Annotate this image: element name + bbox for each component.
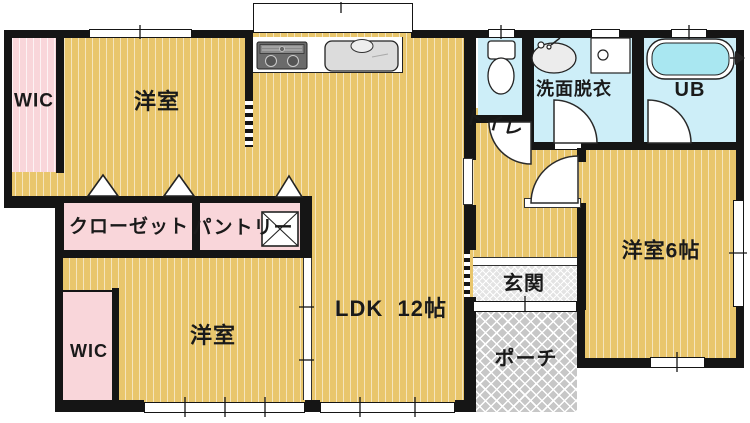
folding-door-triangle (88, 175, 118, 196)
room-label-pantry: パントリー (193, 219, 294, 238)
room-label-unit-bath: UB (675, 80, 706, 100)
bathtub-icon (647, 39, 745, 79)
room-label-bedroom-east: 洋室6帖 (622, 241, 701, 262)
washing-machine-icon (591, 38, 630, 73)
door-arc-bedroom-east (531, 156, 578, 203)
floorplan: WIC 洋室 トイレ 洗面脱衣 UB クローゼット パントリー LDK 12帖 … (0, 0, 750, 423)
floorplan-symbols (0, 0, 750, 423)
room-label-wic-bottom: WIC (70, 342, 108, 360)
folding-door-triangle (164, 175, 194, 196)
stove-icon (257, 42, 307, 69)
room-label-wic-top: WIC (14, 92, 54, 111)
room-label-entrance: 玄関 (503, 274, 545, 294)
room-label-bedroom-bottom: 洋室 (190, 325, 236, 347)
folding-door-marks (88, 175, 302, 197)
room-label-bedroom-top: 洋室 (134, 91, 180, 113)
room-label-porch: ポーチ (495, 349, 558, 369)
room-label-ldk: LDK 12帖 (335, 298, 447, 320)
room-label-washroom: 洗面脱衣 (536, 80, 612, 98)
toilet-icon (488, 41, 515, 94)
room-label-closet: クローゼット (69, 218, 189, 237)
door-arc-bath (648, 100, 691, 143)
door-arc-washroom (554, 100, 597, 143)
kitchen-sink-icon (325, 40, 398, 72)
washbasin-icon (532, 38, 576, 73)
door-swing-arcs (489, 100, 691, 203)
folding-door-triangle (276, 176, 302, 197)
